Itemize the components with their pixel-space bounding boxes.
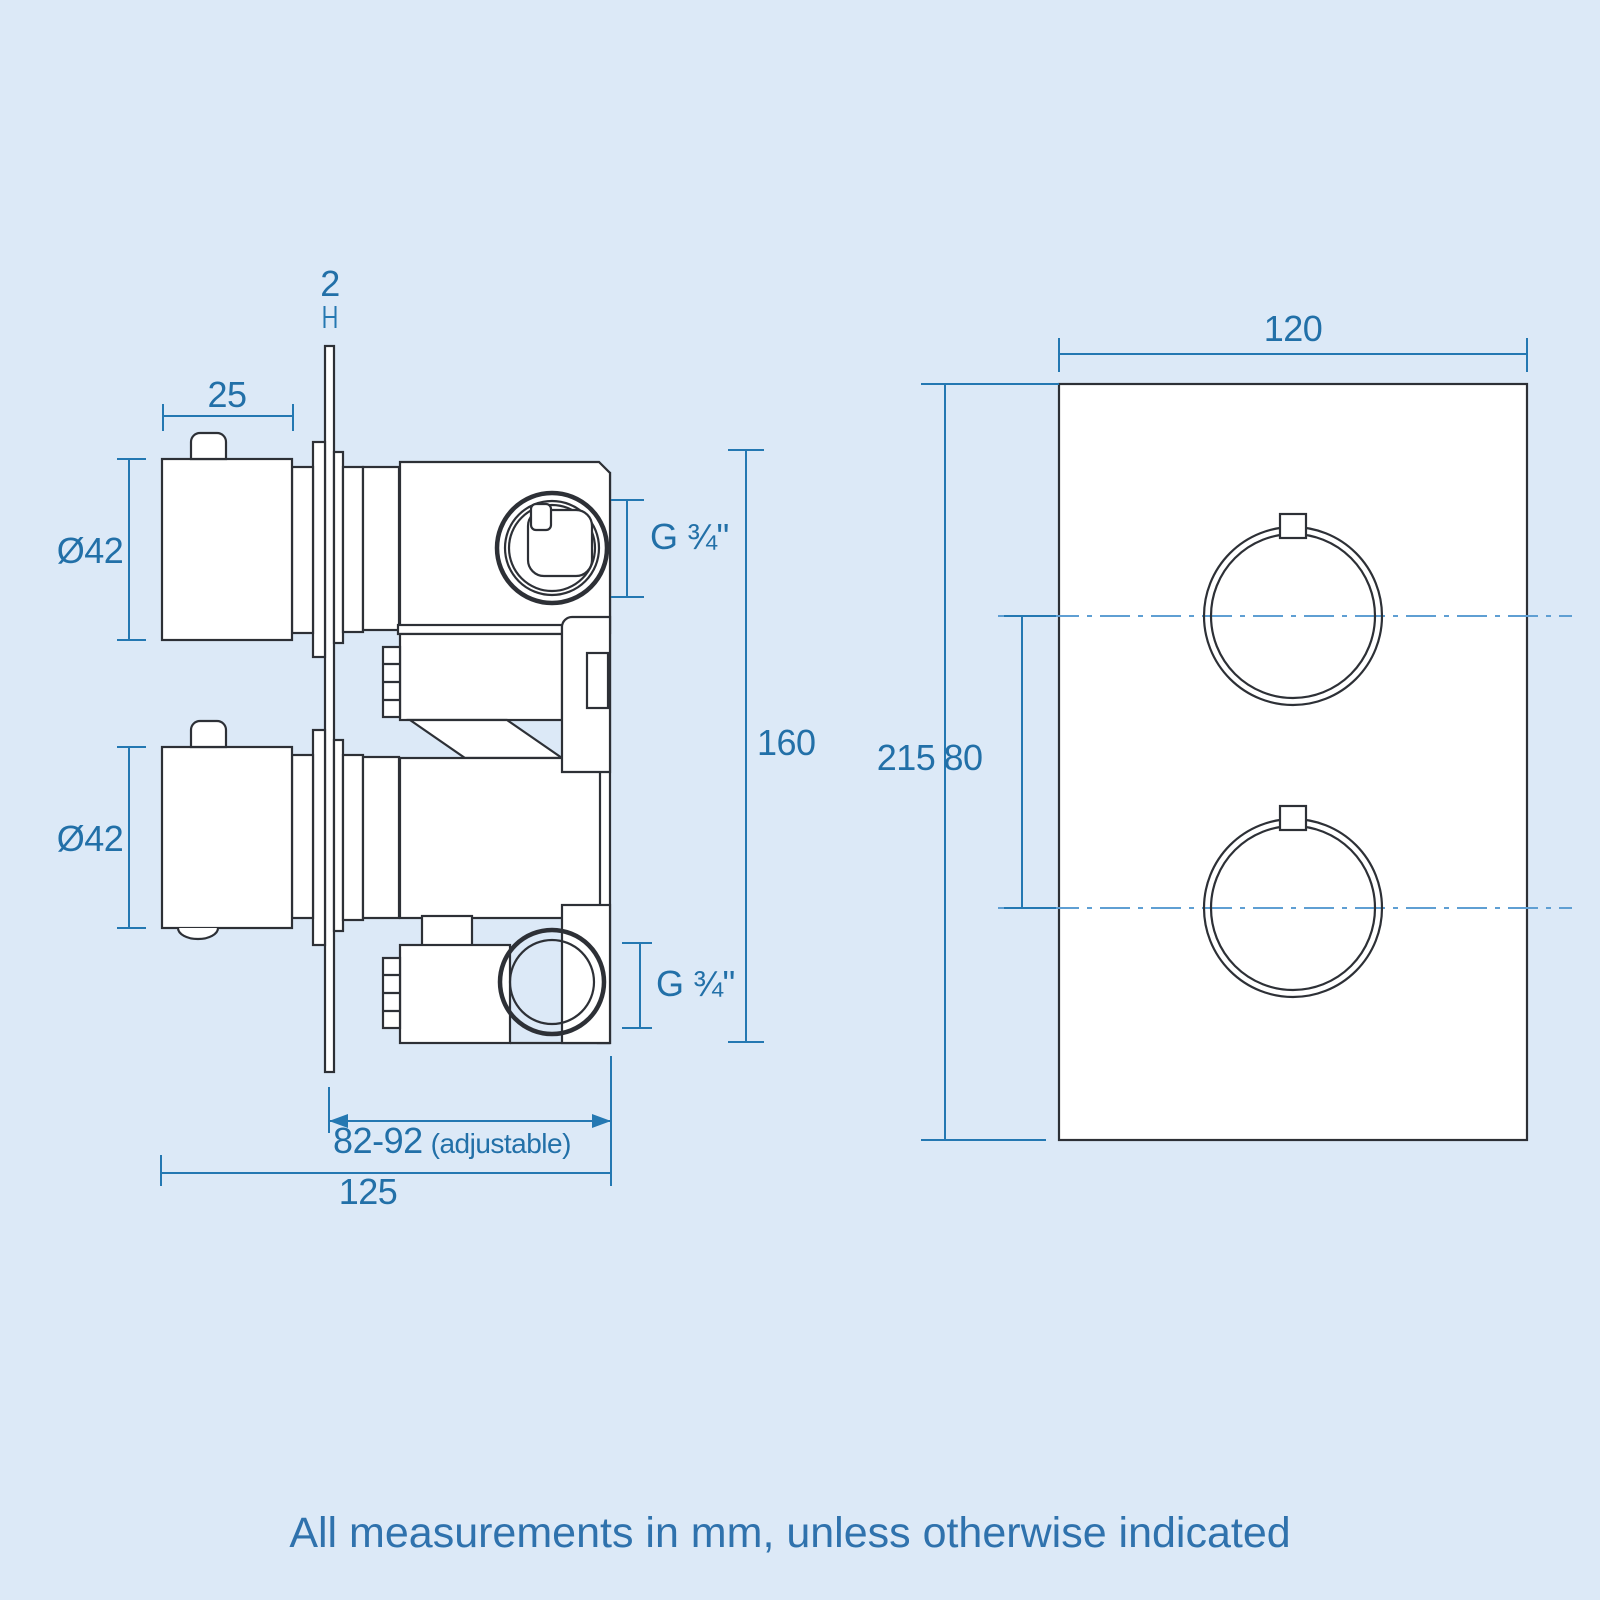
dim-knob-diameter-top: Ø42 (57, 530, 124, 571)
upper-bracket (562, 617, 610, 772)
mid-body-block (400, 634, 562, 720)
bottom-body-block (400, 945, 510, 1043)
bottom-shaft (343, 755, 363, 920)
dim-plate-thickness: 2 (320, 263, 340, 304)
bottom-rear-collar (363, 757, 399, 918)
upper-bracket-hole (587, 653, 608, 708)
bottom-flange-disc (313, 730, 325, 945)
measurements-note: All measurements in mm, unless otherwise… (289, 1509, 1290, 1557)
dim-depth-value: 82-92 (333, 1120, 423, 1161)
body-lip (398, 625, 562, 634)
top-rear-collar (363, 467, 399, 630)
top-knob-nub (191, 433, 226, 459)
bottom-ring-tab (1280, 806, 1306, 830)
dim-port-bottom: G ¾" (656, 963, 735, 1004)
top-front-collar (292, 467, 313, 633)
dim-depth-note: (adjustable) (431, 1128, 571, 1159)
bottom-knob-nub (191, 721, 226, 747)
upper-rib-connector (383, 647, 400, 717)
bottom-front-collar (292, 755, 313, 918)
bottom-rear-disc (334, 740, 343, 931)
valve-dimension-diagram: 2 25 Ø42 Ø42 G ¾" G ¾" (0, 0, 1600, 1600)
face-plate (1059, 384, 1527, 1140)
upper-port-notch (531, 504, 551, 530)
top-handle-assembly (162, 433, 399, 657)
lower-body-block (400, 758, 600, 918)
top-shaft (343, 467, 363, 632)
top-ring-tab (1280, 514, 1306, 538)
dim-handle-spacing: 80 (943, 737, 982, 778)
top-rear-disc (334, 452, 343, 643)
top-knob (162, 459, 292, 640)
dim-knob-diameter-bottom: Ø42 (57, 818, 124, 859)
lower-rib-connector (383, 958, 400, 1028)
bottom-handle-assembly (162, 721, 399, 945)
wall-plate-side (325, 346, 334, 1072)
dim-port-top: G ¾" (650, 516, 729, 557)
bottom-knob (162, 747, 292, 928)
dim-overall-depth: 125 (339, 1171, 398, 1212)
dim-valve-height: 160 (757, 722, 816, 763)
dim-plate-width: 120 (1264, 308, 1323, 349)
top-flange-disc (313, 442, 325, 657)
dim-knob-width: 25 (207, 374, 246, 415)
dim-plate-height: 215 (877, 737, 936, 778)
technical-drawing-page: 2 25 Ø42 Ø42 G ¾" G ¾" (0, 0, 1600, 1600)
